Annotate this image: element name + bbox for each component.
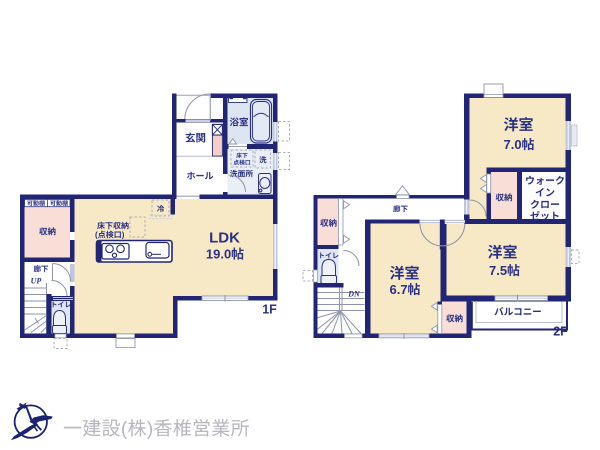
svg-text:(: ( xyxy=(95,231,98,240)
svg-text:UP: UP xyxy=(31,277,42,286)
svg-text:): ) xyxy=(147,419,153,440)
svg-text:2F: 2F xyxy=(553,325,568,339)
svg-text:6.7: 6.7 xyxy=(390,282,408,297)
svg-text:): ) xyxy=(122,231,125,240)
svg-text:19.0: 19.0 xyxy=(206,247,231,262)
svg-text:DN: DN xyxy=(347,290,361,299)
svg-text:(: ( xyxy=(121,419,128,440)
svg-text:7.0: 7.0 xyxy=(504,137,522,152)
svg-text:7.5: 7.5 xyxy=(489,263,507,278)
svg-text:LDK: LDK xyxy=(209,230,240,247)
svg-text:1F: 1F xyxy=(262,303,277,317)
